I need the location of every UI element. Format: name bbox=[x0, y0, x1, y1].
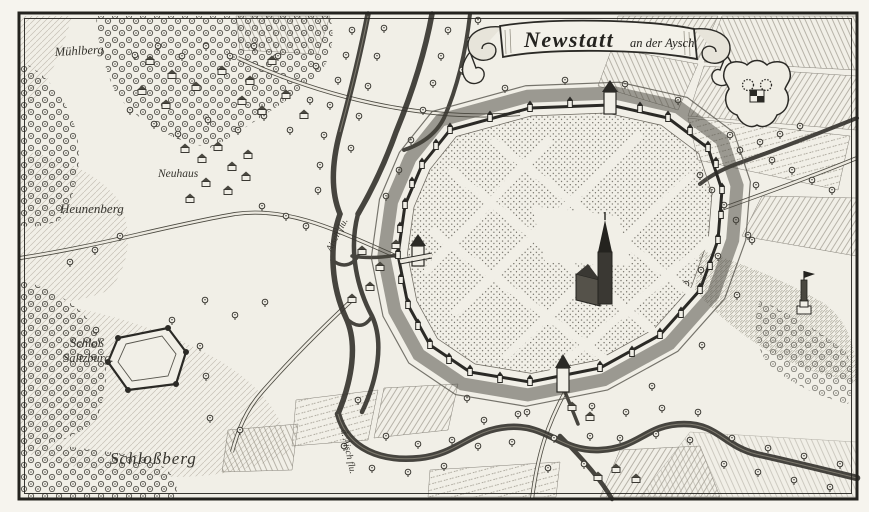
label-heunenberg: Heunenberg bbox=[59, 201, 124, 216]
label-muehlberg: Mühlberg bbox=[53, 42, 104, 59]
label-schloss-line2: Saltzburg. bbox=[63, 351, 114, 365]
banner-subtitle: an der Aysch. bbox=[630, 36, 697, 50]
label-neuhaus: Neuhaus bbox=[157, 168, 199, 180]
banner-title: Newstatt bbox=[523, 27, 614, 52]
label-schloss-line1: Schloß bbox=[70, 336, 105, 350]
map-engraving: Mühlberg Neuhaus Heunenberg Schloß Saltz… bbox=[0, 0, 869, 512]
label-schlossberg: Schloßberg bbox=[110, 449, 197, 468]
engraved-map-page: Mühlberg Neuhaus Heunenberg Schloß Saltz… bbox=[0, 0, 869, 512]
